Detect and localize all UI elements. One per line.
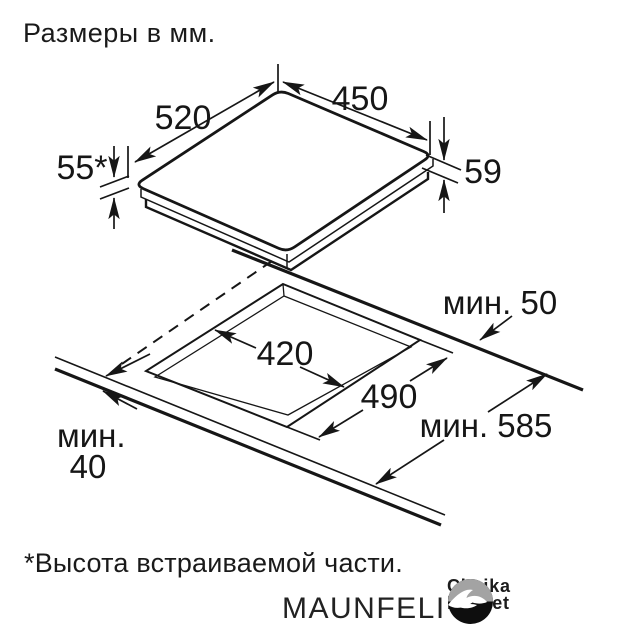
dim-420-line-left — [215, 330, 256, 348]
dim-59: 59 — [422, 117, 502, 213]
dim-520: 520 — [128, 64, 278, 178]
chaika-market-logo: Chaika Market — [447, 578, 511, 612]
dim-490-line-lower — [319, 410, 363, 437]
dim-min-50-label: мин. 50 — [443, 284, 557, 321]
dim-55-label: 55* — [56, 149, 107, 187]
dim-490-label: 490 — [361, 378, 418, 416]
dim-520-label: 520 — [155, 99, 212, 137]
dim-min-50: мин. 50 — [443, 284, 557, 340]
installation-drawing: 520 450 55* 59 — [0, 0, 638, 640]
dim-55-tick-bottom — [100, 188, 129, 199]
dim-min-40-label-value: 40 — [70, 448, 107, 485]
brand-name: MAUNFELI — [282, 592, 446, 626]
dim-450-label: 450 — [332, 80, 389, 118]
technical-drawing-canvas: 520 450 55* 59 — [0, 0, 638, 640]
dim-490-ext-right — [420, 340, 453, 353]
dim-min-585-label: мин. 585 — [420, 407, 553, 444]
dim-min-40-arrow-upper — [106, 354, 150, 376]
dim-59-label: 59 — [464, 153, 502, 191]
cutout-corner-depth-line — [283, 284, 284, 296]
dim-420: 420 — [215, 330, 344, 387]
seagull-icon — [447, 578, 494, 625]
drawing-title: Размеры в мм. — [23, 18, 216, 49]
dim-55: 55* — [56, 146, 129, 229]
dim-min-585-line-lower — [376, 440, 444, 484]
footnote-text: *Высота встраиваемой части. — [24, 548, 403, 579]
dim-min-40: мин. 40 — [57, 354, 150, 485]
dim-490-ext-bottom — [287, 427, 320, 440]
cooktop-glass-underside — [141, 159, 433, 262]
dim-420-label: 420 — [257, 335, 314, 373]
